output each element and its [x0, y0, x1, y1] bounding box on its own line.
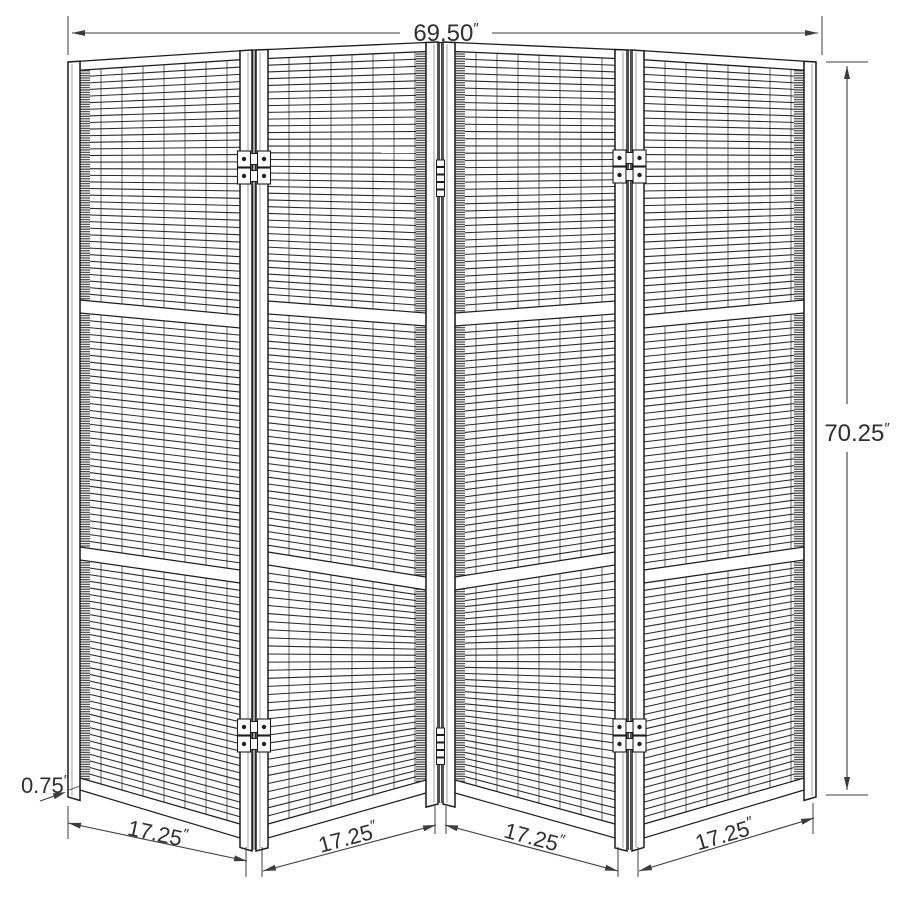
diagram-canvas: 69.50″ 70.25″ 0.75″ 17.25″ 17.25″ 17.25″…	[0, 0, 900, 900]
inch-mark: ″	[884, 420, 890, 437]
height-dimension-label: 70.25″	[824, 420, 890, 447]
width-value: 69.50	[413, 20, 473, 47]
height-value: 70.25	[824, 420, 884, 447]
thickness-dimension-label: 0.75″	[21, 772, 70, 798]
thickness-value: 0.75	[21, 773, 64, 798]
inch-mark: ″	[64, 772, 70, 789]
width-dimension-label: 69.50″	[413, 20, 479, 47]
hinge-edge-icon	[437, 160, 445, 197]
inch-mark: ″	[473, 20, 479, 37]
folding-screen-dimension-diagram: 69.50″ 70.25″ 0.75″ 17.25″ 17.25″ 17.25″…	[0, 0, 900, 900]
hinge-edge-icon	[437, 728, 445, 765]
